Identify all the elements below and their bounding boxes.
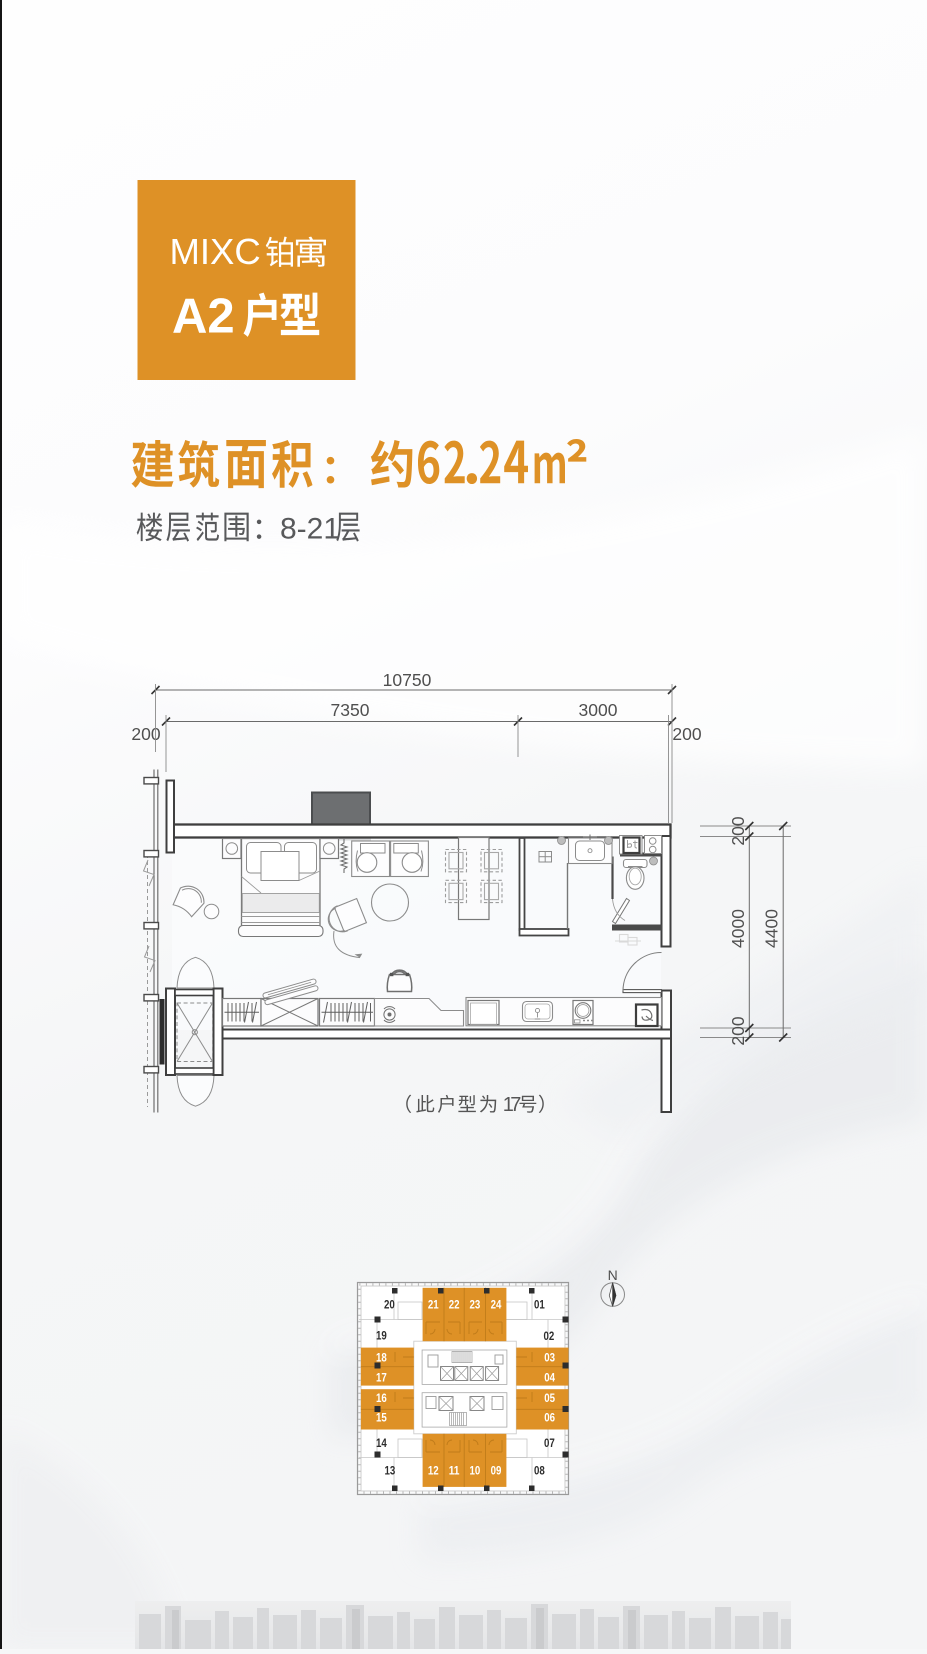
svg-text:22: 22 <box>449 1298 460 1312</box>
svg-text:06: 06 <box>544 1411 555 1425</box>
svg-text:3000: 3000 <box>579 700 618 720</box>
svg-text:10750: 10750 <box>383 670 432 690</box>
svg-text:20: 20 <box>384 1298 395 1312</box>
svg-text:200: 200 <box>728 816 748 845</box>
svg-text:19: 19 <box>376 1329 387 1343</box>
svg-text:7: 7 <box>510 1094 521 1116</box>
svg-text:N: N <box>608 1267 618 1283</box>
svg-text:24: 24 <box>491 1298 502 1312</box>
svg-text:200: 200 <box>131 724 160 744</box>
svg-text:10: 10 <box>470 1463 481 1477</box>
svg-text:200: 200 <box>672 724 701 744</box>
svg-text:04: 04 <box>544 1370 555 1384</box>
svg-text:11: 11 <box>449 1463 460 1477</box>
svg-text:23: 23 <box>470 1298 481 1312</box>
svg-text:15: 15 <box>376 1411 387 1425</box>
svg-text:14: 14 <box>376 1436 387 1450</box>
svg-text:8-21: 8-21 <box>280 513 340 546</box>
svg-text:08: 08 <box>534 1463 545 1477</box>
svg-text:02: 02 <box>544 1329 555 1343</box>
svg-text:7350: 7350 <box>331 700 370 720</box>
svg-text:4400: 4400 <box>762 909 782 948</box>
svg-text:200: 200 <box>728 1016 748 1045</box>
svg-text:16: 16 <box>376 1391 387 1405</box>
svg-text:17: 17 <box>376 1370 387 1384</box>
svg-text:05: 05 <box>544 1391 555 1405</box>
svg-text:4000: 4000 <box>728 909 748 948</box>
svg-text:09: 09 <box>491 1463 502 1477</box>
svg-text:13: 13 <box>385 1463 396 1477</box>
svg-text:07: 07 <box>544 1436 555 1450</box>
svg-text:21: 21 <box>428 1298 439 1312</box>
svg-text:12: 12 <box>428 1463 439 1477</box>
svg-text:MIXC: MIXC <box>170 231 261 272</box>
svg-text:A2: A2 <box>172 289 235 343</box>
svg-text:01: 01 <box>534 1298 545 1312</box>
svg-text:03: 03 <box>544 1351 555 1365</box>
